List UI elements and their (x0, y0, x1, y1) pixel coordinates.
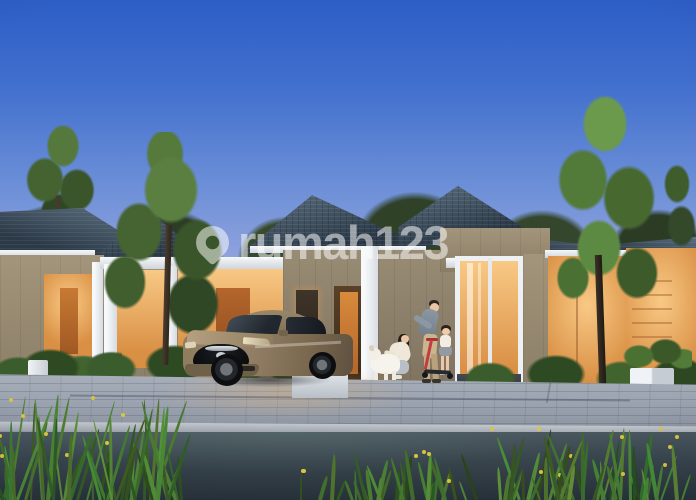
girl-skirt (439, 347, 452, 356)
dog-leg-1 (374, 372, 378, 380)
tree-right-canopy (543, 88, 671, 313)
car-chrome-wing (205, 346, 238, 351)
grass-clump-center (298, 446, 488, 500)
planter-right-plants (616, 330, 692, 378)
dog-ear (369, 345, 374, 351)
sedan-car (183, 308, 355, 392)
grass-clump-left (0, 388, 189, 500)
location-pin-icon (189, 219, 236, 266)
family-group (368, 294, 478, 398)
car-headlight-left (185, 341, 197, 348)
scooter-wheel-front (422, 372, 428, 378)
man-shoe-2 (432, 379, 441, 383)
dog-leg-3 (392, 371, 396, 380)
watermark: rumah123 (196, 219, 448, 266)
car-mirror (279, 330, 288, 336)
man-leg-2 (431, 354, 439, 380)
grass-clump-right (478, 424, 696, 500)
man-shoe-1 (422, 379, 431, 383)
car-wheel-rear (309, 352, 336, 379)
dog-leg-2 (384, 372, 388, 380)
listing-photo: rumah123 (0, 0, 696, 500)
car-wheel-front (211, 354, 243, 386)
scooter-wheel-rear (447, 373, 453, 379)
watermark-text: rumah123 (238, 219, 448, 266)
girl-head (442, 328, 450, 335)
tree-right-edge (655, 148, 696, 268)
